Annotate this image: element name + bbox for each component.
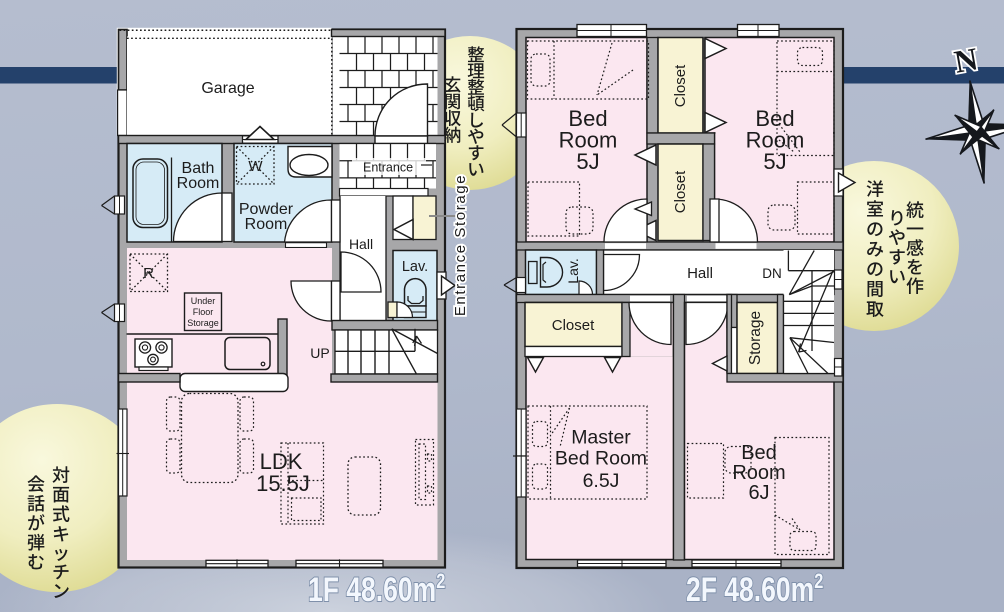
svg-text:6J: 6J: [748, 482, 769, 504]
svg-text:R: R: [143, 265, 154, 282]
svg-text:Room: Room: [177, 175, 220, 192]
svg-text:5J: 5J: [576, 149, 599, 174]
svg-text:Lav.: Lav.: [402, 259, 428, 275]
svg-text:Garage: Garage: [201, 80, 254, 97]
svg-text:15.5J: 15.5J: [256, 471, 310, 496]
svg-text:6.5J: 6.5J: [583, 470, 620, 492]
svg-text:Entrance Storage: Entrance Storage: [452, 174, 469, 316]
svg-text:Closet: Closet: [552, 317, 595, 334]
svg-text:Bed Room: Bed Room: [555, 448, 647, 470]
svg-text:Closet: Closet: [672, 64, 689, 107]
svg-text:Room: Room: [732, 462, 785, 484]
svg-text:Storage: Storage: [747, 311, 764, 365]
svg-text:Lav.: Lav.: [565, 258, 581, 283]
svg-text:DN: DN: [762, 266, 782, 281]
svg-text:Under: Under: [191, 296, 216, 306]
svg-text:Room: Room: [245, 216, 288, 233]
svg-text:W: W: [248, 158, 263, 175]
svg-text:Entrance: Entrance: [363, 161, 413, 175]
svg-text:Master: Master: [571, 426, 631, 448]
svg-text:2F 48.60m2: 2F 48.60m2: [686, 569, 823, 609]
svg-text:Bed: Bed: [741, 442, 777, 464]
svg-text:Closet: Closet: [672, 170, 689, 213]
svg-text:5J: 5J: [763, 149, 786, 174]
svg-text:Hall: Hall: [349, 236, 373, 252]
svg-text:1F 48.60m2: 1F 48.60m2: [308, 569, 445, 609]
svg-text:UP: UP: [310, 345, 329, 361]
svg-text:Floor: Floor: [193, 307, 214, 317]
svg-text:Hall: Hall: [687, 265, 713, 282]
svg-text:Storage: Storage: [187, 318, 219, 328]
